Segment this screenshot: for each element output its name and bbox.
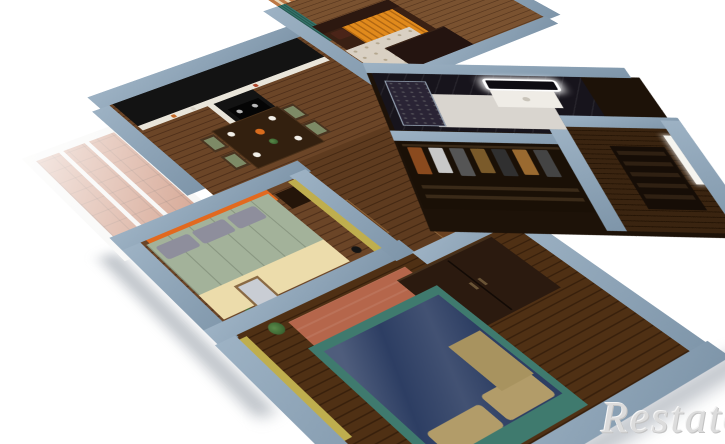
restate-watermark: Restate	[601, 392, 725, 443]
floor-plan-render: Restate	[0, 0, 725, 444]
sink	[521, 97, 531, 101]
cabinet-slat	[630, 172, 681, 177]
burner	[250, 103, 259, 108]
cabinet-slat	[623, 161, 674, 166]
apartment-3d-plan	[0, 0, 725, 444]
bathroom-vanity	[490, 90, 564, 108]
burner	[235, 109, 244, 114]
fruit-bowl	[253, 128, 267, 136]
plate	[267, 115, 278, 121]
plate	[251, 151, 262, 158]
cabinet-slat	[643, 194, 696, 199]
plate	[226, 131, 237, 137]
plate	[293, 135, 304, 141]
table-plant	[267, 138, 280, 146]
cabinet-slat	[616, 151, 666, 156]
cabinet-slat	[636, 183, 688, 188]
